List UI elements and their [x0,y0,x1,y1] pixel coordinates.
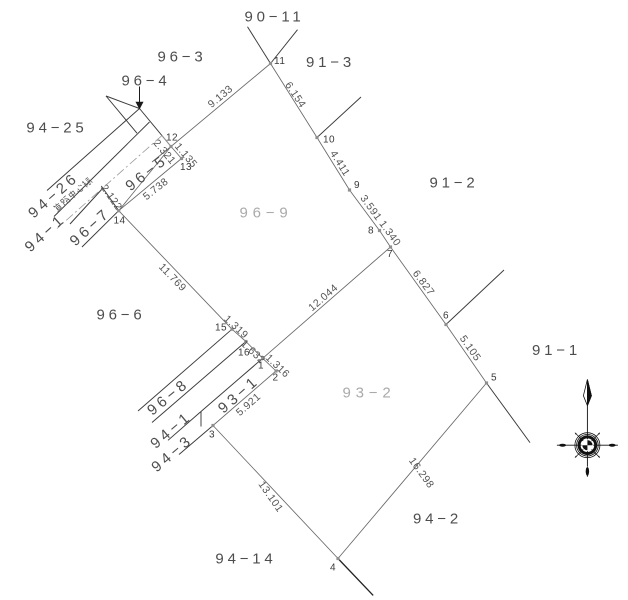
svg-text:96−4: 96−4 [122,73,171,90]
svg-text:9: 9 [354,180,360,191]
svg-text:12: 12 [166,133,178,144]
svg-text:96−6: 96−6 [97,307,146,324]
svg-text:14: 14 [114,216,126,227]
svg-text:96−3: 96−3 [158,49,207,66]
svg-text:6: 6 [443,311,449,322]
svg-text:11: 11 [274,56,285,67]
svg-text:4: 4 [330,563,336,574]
svg-text:94−25: 94−25 [26,120,87,137]
svg-text:93−2: 93−2 [343,385,396,402]
svg-text:91−3: 91−3 [306,54,355,71]
svg-text:7: 7 [387,249,393,260]
svg-text:10: 10 [323,135,335,146]
svg-text:91−2: 91−2 [430,175,479,192]
svg-text:94−2: 94−2 [413,511,462,528]
svg-text:96−9: 96−9 [240,205,293,222]
svg-text:3: 3 [209,430,215,441]
svg-text:5: 5 [491,373,497,384]
svg-text:91−1: 91−1 [532,342,581,359]
svg-text:8: 8 [368,226,374,237]
svg-text:94−14: 94−14 [215,551,276,568]
svg-text:90−11: 90−11 [244,9,304,26]
